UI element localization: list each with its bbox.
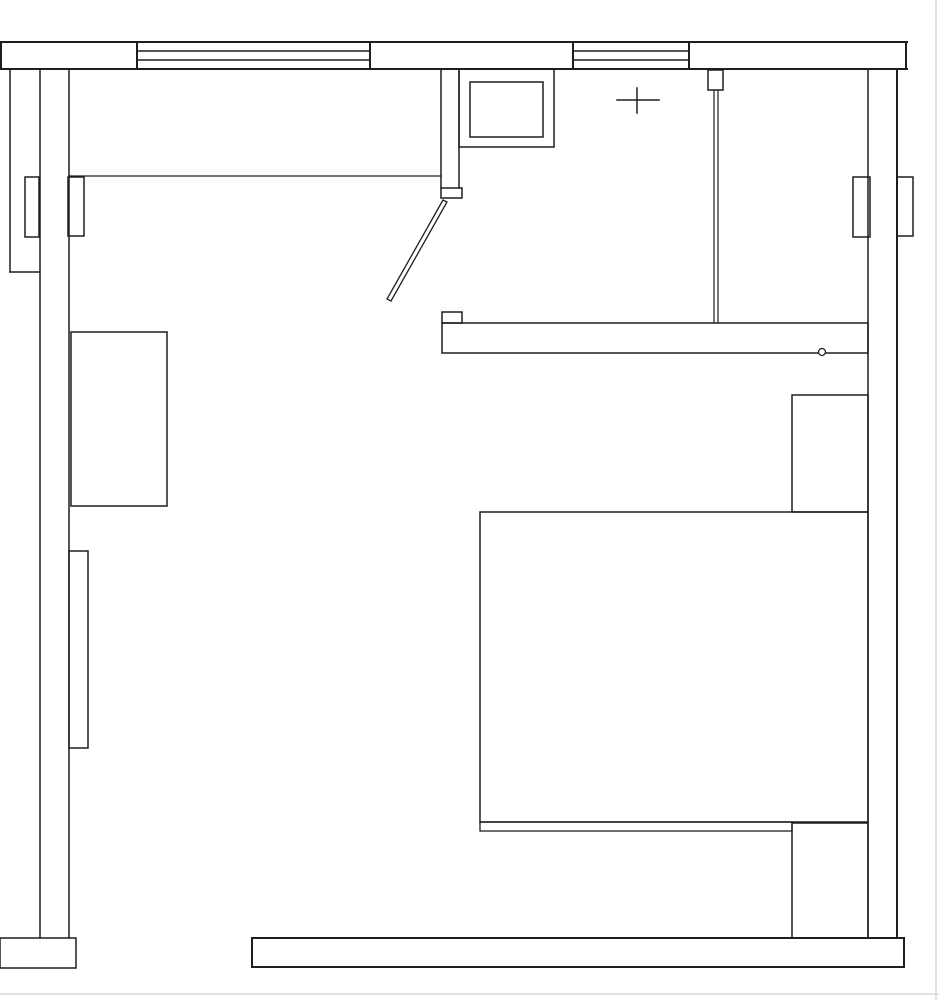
floor-plan-canvas (0, 0, 939, 1000)
bed-footboard-strip (480, 822, 792, 831)
floor-plan-page (0, 0, 939, 1000)
partition-wall-hanger-box (708, 70, 723, 90)
stove-inner-box (470, 82, 543, 137)
left-window-inner-sash-box (68, 177, 84, 236)
bottom-left-wall-stub (0, 938, 76, 968)
right-window-outer-sash-box (897, 177, 913, 236)
nightstand-upper-rect (792, 395, 868, 512)
left-radiator-rect (69, 551, 88, 748)
wardrobe-knob-circle (819, 349, 826, 356)
wardrobe-band-end-square (442, 312, 462, 323)
stove-outer-box (459, 69, 554, 147)
bed-rect (480, 512, 868, 822)
bottom-wall (252, 938, 904, 967)
left-window-outer-sash-box (25, 177, 39, 237)
wardrobe-band (442, 323, 868, 353)
desk-rect (71, 332, 167, 506)
nightstand-lower-rect (792, 823, 868, 938)
door-jamb-block (441, 188, 462, 198)
door-leaf (387, 200, 447, 301)
